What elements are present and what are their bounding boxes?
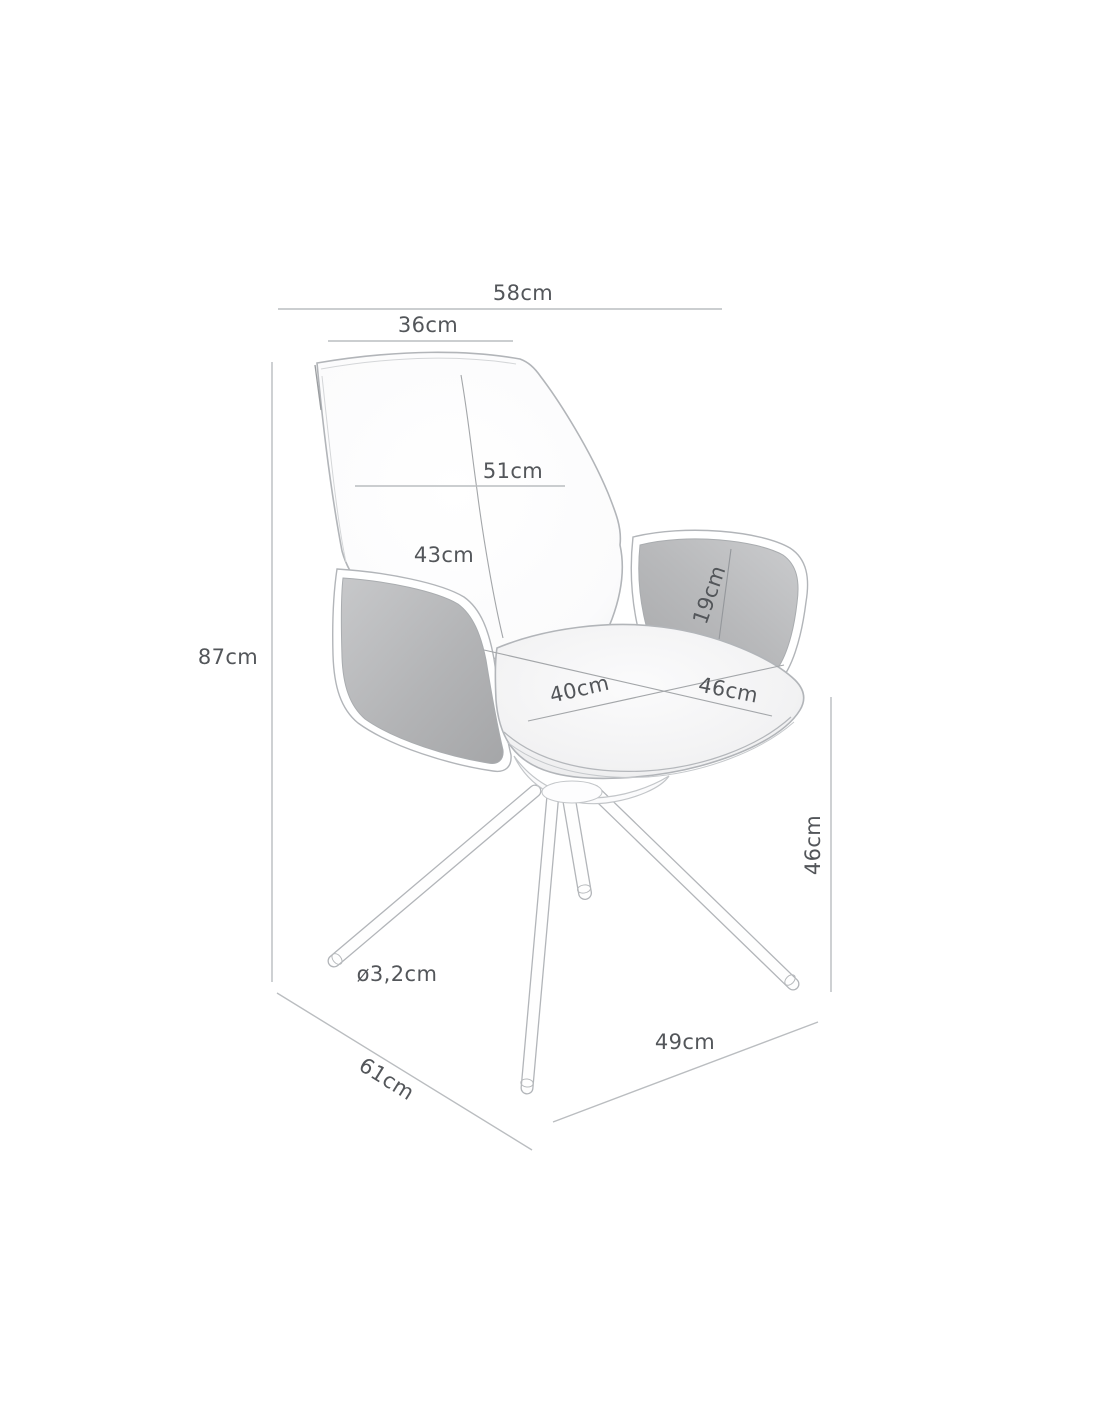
swivel-hub <box>542 781 602 803</box>
leg-front <box>527 794 553 1088</box>
leg-left <box>334 791 535 961</box>
backrest-width-label: 51cm <box>483 459 543 483</box>
backrest-height-label: 43cm <box>414 543 474 567</box>
total-width-label: 58cm <box>493 281 553 305</box>
chair-dimension-diagram: 58cm 36cm 51cm 43cm 19cm 87cm 40cm 46cm … <box>0 0 1100 1422</box>
back-top-width-label: 36cm <box>398 313 458 337</box>
base-depth-label: 49cm <box>655 1030 715 1054</box>
leg-diameter-label: ø3,2cm <box>357 962 438 986</box>
total-depth-line <box>277 993 532 1150</box>
chair-legs <box>330 791 797 1088</box>
total-height-label: 87cm <box>198 645 258 669</box>
seat-height-label: 46cm <box>801 815 825 875</box>
leg-right <box>594 791 793 984</box>
